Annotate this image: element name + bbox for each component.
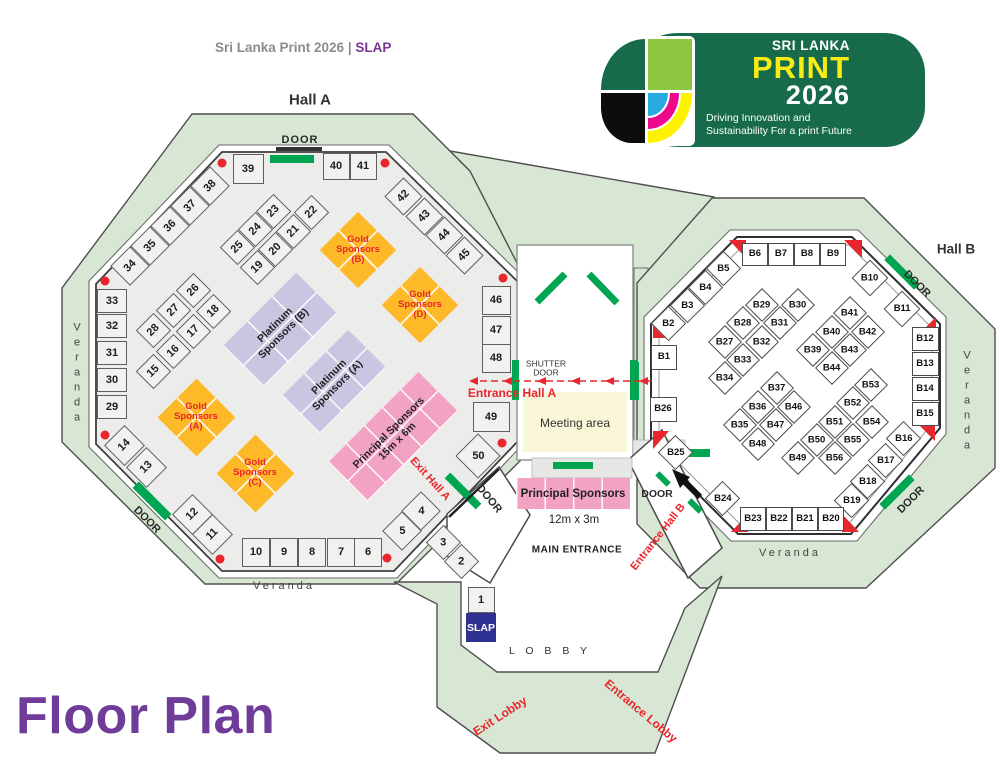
header-brand: SLAP bbox=[355, 40, 391, 55]
booth-9[interactable]: 9 bbox=[270, 538, 298, 567]
logo-quadrant-green-icon bbox=[601, 39, 645, 90]
booth-B22[interactable]: B22 bbox=[766, 507, 792, 531]
hall-b-title: Hall B bbox=[937, 242, 975, 257]
booth-30[interactable]: 30 bbox=[97, 368, 127, 392]
page-header: Sri Lanka Print 2026 | SLAP bbox=[215, 40, 391, 55]
booth-41[interactable]: 41 bbox=[350, 153, 377, 180]
lobby-label: L O B B Y bbox=[509, 645, 591, 657]
booth-B23[interactable]: B23 bbox=[740, 507, 766, 531]
booth-31[interactable]: 31 bbox=[97, 341, 127, 365]
principal-small-size-label: 12m x 3m bbox=[549, 514, 600, 526]
booth-39[interactable]: 39 bbox=[233, 154, 264, 184]
veranda-label-b-right: Veranda bbox=[961, 350, 973, 455]
entrance-hall-a-label: Entrance Hall A bbox=[468, 386, 556, 400]
booth-B7[interactable]: B7 bbox=[768, 243, 794, 266]
page-title: Floor Plan bbox=[16, 686, 275, 746]
hall-a-top-door bbox=[270, 155, 314, 163]
booth-B12[interactable]: B12 bbox=[912, 327, 939, 351]
veranda-label-a-bottom: Veranda bbox=[253, 580, 315, 592]
logo-quadrant-lightgreen-icon bbox=[648, 39, 692, 90]
logo-text: SRI LANKA PRINT 2026 bbox=[700, 38, 850, 109]
header-title: Sri Lanka Print 2026 bbox=[215, 40, 344, 55]
logo-tagline: Driving Innovation and Sustainability Fo… bbox=[706, 112, 866, 137]
booth-40[interactable]: 40 bbox=[323, 153, 350, 180]
booth-47[interactable]: 47 bbox=[482, 316, 511, 345]
booth-B14[interactable]: B14 bbox=[912, 377, 939, 401]
booth-B21[interactable]: B21 bbox=[792, 507, 818, 531]
door-label-corridor-b: DOOR bbox=[641, 488, 673, 500]
booth-B8[interactable]: B8 bbox=[794, 243, 820, 266]
booth-6[interactable]: 6 bbox=[354, 538, 382, 567]
booth-32[interactable]: 32 bbox=[97, 314, 127, 338]
booth-B6[interactable]: B6 bbox=[742, 243, 768, 266]
booth-10[interactable]: 10 bbox=[242, 538, 270, 567]
meeting-area-label: Meeting area bbox=[540, 416, 610, 430]
logo-word: PRINT bbox=[700, 53, 850, 82]
lobby-veranda bbox=[394, 576, 722, 753]
booth-B26[interactable]: B26 bbox=[650, 397, 677, 422]
logo-year: 2026 bbox=[700, 82, 850, 109]
booth-48[interactable]: 48 bbox=[482, 344, 511, 373]
booth-8[interactable]: 8 bbox=[298, 538, 326, 567]
booth-49[interactable]: 49 bbox=[473, 402, 510, 432]
logo-quadrant-icon bbox=[598, 36, 695, 146]
booth-46[interactable]: 46 bbox=[482, 286, 511, 315]
slap-booth[interactable]: SLAP bbox=[466, 613, 496, 642]
veranda-label-b-bottom: Veranda bbox=[759, 547, 821, 559]
booth-1[interactable]: 1 bbox=[468, 587, 495, 613]
principal-sponsors-small-zone[interactable]: Principal Sponsors bbox=[516, 478, 630, 509]
booth-7[interactable]: 7 bbox=[327, 538, 355, 567]
booth-B1[interactable]: B1 bbox=[651, 345, 677, 370]
booth-B15[interactable]: B15 bbox=[912, 402, 939, 426]
meeting-south-door bbox=[553, 462, 593, 469]
booth-33[interactable]: 33 bbox=[97, 289, 127, 313]
booth-B9[interactable]: B9 bbox=[820, 243, 846, 266]
booth-B13[interactable]: B13 bbox=[912, 352, 939, 376]
floor-plan-page: Sri Lanka Print 2026 | SLAP SRI LANKA PR… bbox=[0, 0, 1000, 783]
booth-29[interactable]: 29 bbox=[97, 395, 127, 419]
logo-quadrant-black-icon bbox=[601, 93, 645, 144]
main-entrance-label: MAIN ENTRANCE bbox=[532, 545, 622, 556]
shutter-door-label: SHUTTERDOOR bbox=[526, 360, 566, 379]
logo-quadrant-cmy-icon bbox=[648, 93, 692, 144]
hall-a-title: Hall A bbox=[289, 92, 331, 109]
door-label-top-a: DOOR bbox=[282, 134, 319, 146]
veranda-label-a-left: Veranda bbox=[71, 322, 83, 427]
booth-B20[interactable]: B20 bbox=[818, 507, 844, 531]
